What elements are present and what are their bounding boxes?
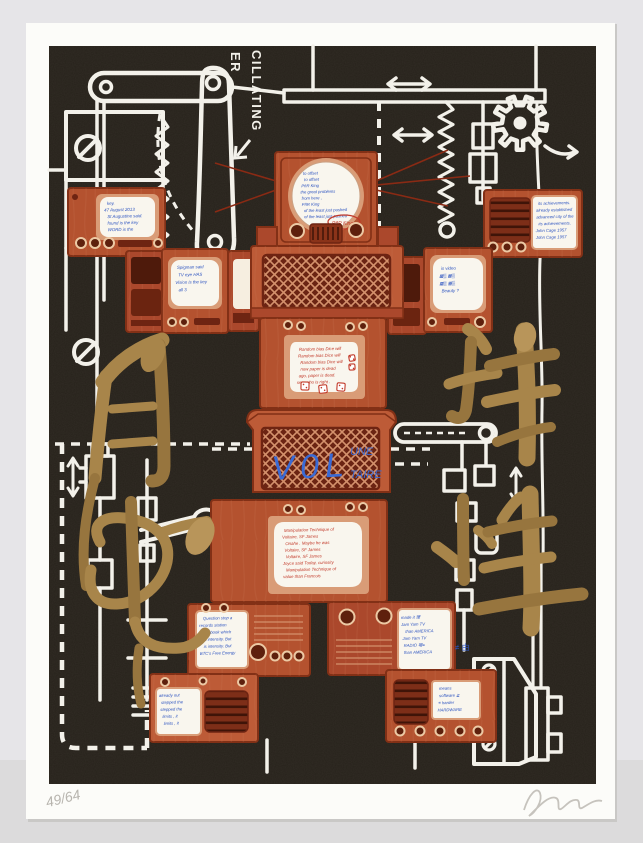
svg-text:found is the key: found is the key [107,220,139,226]
svg-text:≠ 由: ≠ 由 [455,642,470,652]
svg-text:Voltaire, SF James: Voltaire, SF James [284,547,321,553]
svg-text:now paper is dead: now paper is dead [300,366,336,372]
svg-text:value than Francois: value than Francois [283,573,321,579]
svg-text:the great problems: the great problems [300,189,336,195]
svg-text:its achievements.: its achievements. [538,220,570,226]
svg-text:ER: ER [228,52,243,73]
svg-text:than AMERICA: than AMERICA [405,628,434,634]
svg-text:BTC's Free Energy: BTC's Free Energy [200,650,236,656]
svg-text:RADIO 場≡: RADIO 場≡ [404,642,426,648]
svg-text:all 3: all 3 [178,287,187,292]
svg-text:Spigman said: Spigman said [177,264,204,270]
svg-text:already out: already out [159,692,181,698]
svg-text:records station: records station [199,622,227,628]
svg-text:HARDWARE: HARDWARE [437,707,462,713]
svg-text:made it 理: made it 理 [401,614,421,620]
svg-text:from here ,: from here , [302,195,322,201]
svg-text:software ≧: software ≧ [439,693,460,699]
svg-text:CILLATING: CILLATING [249,50,264,132]
svg-text:47 August 2013: 47 August 2013 [104,207,135,213]
svg-text:key.: key. [107,201,115,206]
svg-text:St Augustine said.: St Augustine said. [107,213,142,219]
svg-text:is video: is video [441,265,457,270]
svg-text:means: means [439,686,453,691]
svg-text:John Cage 1957: John Cage 1957 [535,234,568,240]
svg-text:stepped the: stepped the [160,706,183,712]
svg-text:limits , it: limits , it [164,720,180,725]
svg-text:UNE: UNE [350,446,374,458]
svg-text:than AMERICA: than AMERICA [404,649,433,655]
svg-text:to offset: to offset [303,171,319,176]
svg-text:stepped the: stepped the [161,699,184,705]
svg-text:TAIRE: TAIRE [350,469,382,481]
svg-text:V0L: V0L [270,446,350,488]
svg-text:John Cage 1957: John Cage 1957 [535,227,568,233]
svg-text:limits , it: limits , it [162,713,178,718]
svg-text:Beauty ?: Beauty ? [441,288,459,293]
svg-text:Voltaire, SF James: Voltaire, SF James [282,534,319,540]
svg-text:Jam Yam TV: Jam Yam TV [401,635,427,641]
svg-text:WORD is the: WORD is the [108,227,134,233]
svg-text:already established: already established [536,207,573,213]
svg-text:advanced city of the: advanced city of the [536,214,574,220]
svg-text:≡ harder: ≡ harder [438,700,454,705]
svg-text:its achievements.: its achievements. [538,200,570,206]
svg-text:to offset: to offset [304,177,320,182]
svg-text:PñR King: PñR King [301,183,319,188]
svg-text:PñR King: PñR King [302,201,320,206]
svg-text:Question stop a: Question stop a [203,615,233,621]
svg-text:Jam Yam TV: Jam Yam TV [400,621,426,627]
svg-text:ago, paper is dead.: ago, paper is dead. [299,372,336,378]
svg-text:Voltaire, SF James: Voltaire, SF James [286,553,323,559]
svg-text:is intensity. But: is intensity. But [204,643,233,649]
svg-text:TV eye HAS: TV eye HAS [178,272,202,278]
svg-text:Vision is the key: Vision is the key [175,279,208,285]
